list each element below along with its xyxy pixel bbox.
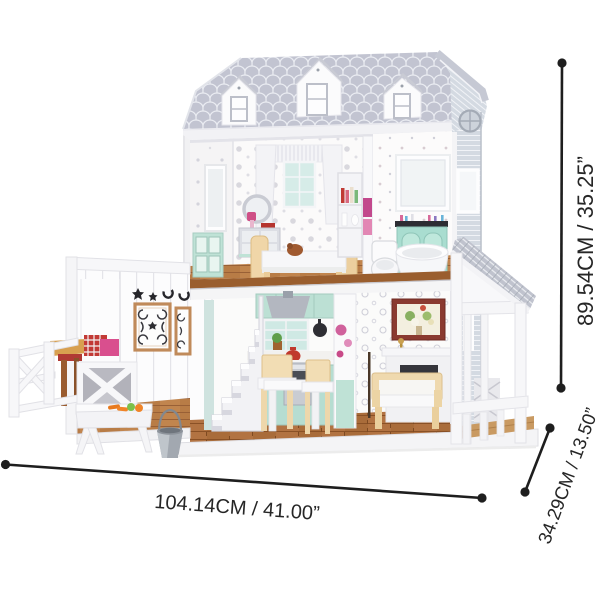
svg-text:89.54CM / 35.25”: 89.54CM / 35.25” — [573, 156, 598, 326]
